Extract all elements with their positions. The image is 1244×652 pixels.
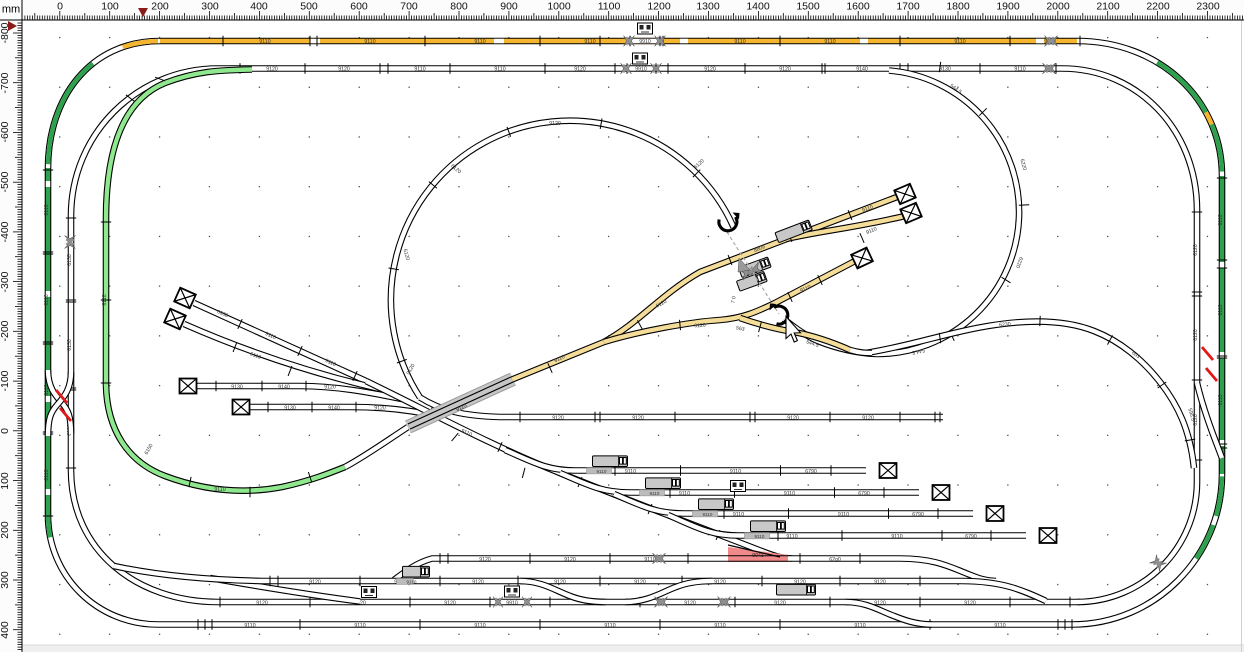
svg-text:0: 0 xyxy=(57,1,63,13)
svg-text:9120: 9120 xyxy=(704,67,716,73)
svg-text:6130: 6130 xyxy=(67,254,73,266)
svg-text:2200: 2200 xyxy=(1146,1,1170,13)
svg-text:9110: 9110 xyxy=(1014,67,1025,73)
svg-text:9120: 9120 xyxy=(256,601,268,607)
svg-text:6790: 6790 xyxy=(805,469,817,475)
svg-text:9120: 9120 xyxy=(684,601,696,607)
svg-text:2300: 2300 xyxy=(1196,1,1220,13)
svg-text:6110: 6110 xyxy=(102,294,108,305)
svg-text:9110: 9110 xyxy=(714,623,725,629)
svg-text:6790: 6790 xyxy=(912,512,924,518)
svg-text:1100: 1100 xyxy=(598,1,621,13)
svg-text:9110: 9110 xyxy=(597,469,607,474)
svg-text:9110: 9110 xyxy=(734,39,745,45)
svg-text:9110: 9110 xyxy=(786,534,797,540)
svg-text:mm: mm xyxy=(2,4,20,16)
svg-text:9120: 9120 xyxy=(479,557,491,563)
svg-text:9110: 9110 xyxy=(703,512,713,517)
svg-text:1200: 1200 xyxy=(647,1,671,13)
svg-text:100: 100 xyxy=(101,1,119,13)
svg-text:9110: 9110 xyxy=(625,469,636,475)
svg-text:9110: 9110 xyxy=(244,623,255,629)
svg-text:0: 0 xyxy=(0,428,11,434)
svg-text:800: 800 xyxy=(450,1,468,13)
svg-text:2000: 2000 xyxy=(1046,1,1070,13)
svg-text:1800: 1800 xyxy=(946,1,970,13)
svg-text:9140: 9140 xyxy=(278,385,290,391)
svg-text:9120: 9120 xyxy=(574,67,586,73)
svg-text:9110: 9110 xyxy=(407,580,417,585)
svg-text:9120: 9120 xyxy=(549,121,561,127)
svg-text:6790: 6790 xyxy=(858,491,870,497)
svg-text:400: 400 xyxy=(250,1,268,13)
svg-text:9120: 9120 xyxy=(444,601,456,607)
svg-text:2100: 2100 xyxy=(1096,1,1120,13)
svg-text:9130: 9130 xyxy=(939,67,951,73)
svg-text:9041: 9041 xyxy=(752,553,764,559)
svg-text:9120: 9120 xyxy=(714,580,726,586)
svg-text:9110: 9110 xyxy=(494,67,505,73)
svg-text:9110: 9110 xyxy=(854,623,865,629)
svg-text:700: 700 xyxy=(400,1,418,13)
svg-text:200: 200 xyxy=(0,521,11,539)
svg-text:9130: 9130 xyxy=(231,385,243,391)
svg-text:1000: 1000 xyxy=(547,1,571,13)
svg-text:6110: 6110 xyxy=(1218,214,1224,225)
svg-text:9110: 9110 xyxy=(214,487,225,493)
svg-text:9910: 9910 xyxy=(639,39,651,45)
svg-text:9120: 9120 xyxy=(779,67,791,73)
svg-text:900: 900 xyxy=(500,1,518,13)
svg-text:9110: 9110 xyxy=(838,512,849,518)
svg-text:9120: 9120 xyxy=(634,580,646,586)
svg-text:9110: 9110 xyxy=(679,491,690,497)
svg-text:6230: 6230 xyxy=(999,322,1011,329)
svg-text:1600: 1600 xyxy=(846,1,870,13)
svg-text:9910: 9910 xyxy=(635,67,647,73)
svg-text:6110: 6110 xyxy=(1218,394,1224,405)
svg-text:9110: 9110 xyxy=(584,39,595,45)
svg-text:9130: 9130 xyxy=(284,406,296,412)
svg-text:300: 300 xyxy=(0,571,11,589)
svg-text:9120: 9120 xyxy=(787,416,799,422)
svg-text:9120: 9120 xyxy=(874,580,886,586)
svg-text:6120: 6120 xyxy=(694,323,706,330)
svg-text:9110: 9110 xyxy=(474,623,485,629)
svg-text:9120: 9120 xyxy=(472,580,484,586)
svg-text:9120: 9120 xyxy=(862,416,874,422)
svg-text:-400: -400 xyxy=(0,221,11,242)
svg-text:6110: 6110 xyxy=(44,204,50,215)
svg-text:9140: 9140 xyxy=(856,67,868,73)
svg-text:-100: -100 xyxy=(0,370,11,391)
svg-text:62g0: 62g0 xyxy=(829,557,841,563)
svg-text:9110: 9110 xyxy=(824,39,835,45)
svg-text:9120: 9120 xyxy=(309,580,321,586)
svg-text:9110: 9110 xyxy=(650,491,660,496)
svg-text:1300: 1300 xyxy=(696,1,720,13)
svg-text:9120: 9120 xyxy=(266,67,278,73)
svg-text:9110: 9110 xyxy=(994,623,1005,629)
svg-text:9140: 9140 xyxy=(328,406,340,412)
svg-text:9120: 9120 xyxy=(552,416,564,422)
svg-text:-200: -200 xyxy=(0,320,11,341)
svg-text:9120: 9120 xyxy=(964,601,976,607)
svg-text:9110: 9110 xyxy=(604,623,615,629)
svg-text:200: 200 xyxy=(151,1,169,13)
svg-text:9110: 9110 xyxy=(733,512,744,518)
svg-text:500: 500 xyxy=(300,1,318,13)
svg-text:-300: -300 xyxy=(0,271,11,292)
svg-text:7 0: 7 0 xyxy=(730,296,737,304)
svg-text:9120: 9120 xyxy=(564,557,576,563)
svg-text:9910: 9910 xyxy=(506,601,518,607)
svg-text:-600: -600 xyxy=(0,121,11,142)
svg-text:6110: 6110 xyxy=(44,469,50,480)
svg-text:400: 400 xyxy=(0,621,11,639)
svg-text:-500: -500 xyxy=(0,171,11,192)
svg-text:9110: 9110 xyxy=(891,534,902,540)
svg-text:6120: 6120 xyxy=(1193,329,1199,341)
svg-text:9120: 9120 xyxy=(338,67,350,73)
svg-text:9110: 9110 xyxy=(414,67,425,73)
svg-text:6790: 6790 xyxy=(965,534,977,540)
svg-text:9110: 9110 xyxy=(954,39,965,45)
svg-text:9110: 9110 xyxy=(354,623,365,629)
svg-text:9120: 9120 xyxy=(374,406,386,412)
svg-text:-700: -700 xyxy=(0,72,11,93)
svg-text:9120: 9120 xyxy=(774,601,786,607)
svg-text:9120: 9120 xyxy=(632,416,644,422)
svg-text:100: 100 xyxy=(0,472,11,490)
svg-text:9120: 9120 xyxy=(324,385,336,391)
svg-text:1700: 1700 xyxy=(896,1,920,13)
svg-text:1500: 1500 xyxy=(796,1,820,13)
svg-text:6120: 6120 xyxy=(1193,244,1199,256)
svg-text:9120: 9120 xyxy=(554,580,566,586)
svg-text:6110: 6110 xyxy=(1218,304,1224,315)
svg-text:9110: 9110 xyxy=(259,39,270,45)
svg-text:1400: 1400 xyxy=(746,1,770,13)
svg-text:9110: 9110 xyxy=(755,534,765,539)
svg-text:300: 300 xyxy=(201,1,219,13)
svg-text:6130: 6130 xyxy=(67,339,73,351)
svg-text:9110: 9110 xyxy=(364,39,375,45)
svg-text:9110: 9110 xyxy=(730,469,741,475)
svg-text:600: 600 xyxy=(350,1,368,13)
svg-text:1900: 1900 xyxy=(996,1,1020,13)
svg-text:9110: 9110 xyxy=(474,39,485,45)
svg-text:6110: 6110 xyxy=(44,294,50,305)
svg-text:9110: 9110 xyxy=(784,491,795,497)
